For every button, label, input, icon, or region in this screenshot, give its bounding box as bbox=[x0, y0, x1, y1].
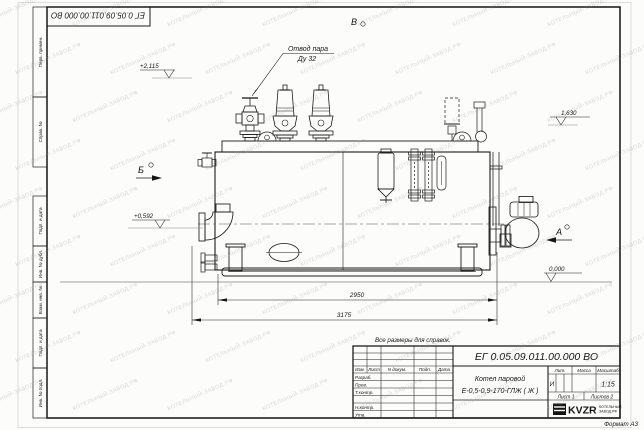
lit-value: И bbox=[550, 381, 555, 388]
view-v-text: В bbox=[351, 17, 357, 27]
view-b-marker: Б bbox=[136, 163, 162, 181]
col-doc: N докум. bbox=[388, 367, 407, 372]
view-a-marker: А bbox=[546, 225, 572, 243]
elevation-left: +0,592 bbox=[128, 213, 203, 228]
col-podp: Подп. bbox=[419, 367, 431, 372]
top-platform bbox=[222, 141, 478, 152]
product-name-2: Е-0,5-0,9-170-ГЛЖ ( Ж ) bbox=[462, 388, 539, 395]
steam-outlet-label-2: Ду 32 bbox=[297, 56, 316, 63]
margin-label: Справ. № bbox=[38, 122, 43, 143]
dim-overall-text: 3175 bbox=[337, 312, 352, 319]
left-elbow bbox=[199, 204, 233, 241]
margin-label: Взам. инв. № bbox=[38, 286, 43, 315]
kvzr-logo: KVZR КОТЕЛЬНЫЙ ЗАВОД.РФ bbox=[553, 404, 622, 417]
elev-right-text: 1,630 bbox=[561, 110, 577, 117]
row-tkontr: Т.контр. bbox=[355, 390, 374, 395]
elev-left-text: +0,592 bbox=[134, 213, 154, 220]
burner bbox=[489, 197, 539, 256]
drawing-canvas: Перв. примен. Справ. № Подп. и дата Инв.… bbox=[0, 0, 644, 430]
gauge-cylinder bbox=[378, 149, 394, 203]
margin-label: Подп. и дата bbox=[38, 207, 43, 235]
product-name-1: Котел паровой bbox=[475, 375, 525, 383]
sheet-number: Лист 1 bbox=[556, 395, 574, 401]
row-prov: Пров. bbox=[355, 383, 367, 388]
row-razrab: Разраб. bbox=[355, 375, 372, 380]
safety-valve-2 bbox=[309, 85, 333, 141]
title-block: Все размеры для справок. Изм. Лист N док… bbox=[353, 337, 639, 428]
boiler-body bbox=[198, 132, 508, 270]
steam-outlet-leader: Отвод пара Ду 32 bbox=[252, 45, 334, 96]
elev-top-text: +2,115 bbox=[140, 63, 159, 70]
elev-zero-text: 0,000 bbox=[549, 266, 565, 273]
safety-valve-1 bbox=[273, 85, 297, 141]
inverted-designation-box: ЕГ 0.05.09.011.00.000 ВО bbox=[47, 7, 150, 26]
skid-supports bbox=[222, 244, 482, 276]
reference-note: Все размеры для справок. bbox=[375, 337, 451, 344]
elevation-top: +2,115 bbox=[140, 63, 192, 78]
logo-text: KVZR bbox=[568, 405, 597, 417]
sheets-total: Листов 2 bbox=[590, 395, 614, 401]
dimension-3175: 3175 bbox=[192, 246, 497, 325]
margin-label: Подп. и дата bbox=[38, 329, 43, 357]
drawing-sheet: Перв. примен. Справ. № Подп. и дата Инв.… bbox=[0, 0, 644, 430]
doc-number: ЕГ 0.05.09.011.00.000 ВО bbox=[475, 351, 598, 363]
scale-value: 1:15 bbox=[601, 382, 615, 389]
steam-outlet-label-1: Отвод пара bbox=[288, 45, 328, 53]
view-a-text: А bbox=[555, 227, 562, 237]
right-top-fitting bbox=[444, 98, 487, 142]
elevation-zero: 0,000 bbox=[544, 266, 582, 282]
col-izm: Изм. bbox=[355, 367, 365, 372]
margin-label: Перв. примен. bbox=[38, 37, 43, 68]
trim-border bbox=[18, 3, 631, 428]
left-wall-valve bbox=[198, 153, 216, 167]
inverted-designation-text: ЕГ 0.05.09.011.00.000 ВО bbox=[51, 11, 145, 20]
logo-sub-1: КОТЕЛЬНЫЙ bbox=[599, 405, 622, 409]
lit-header: Лит. bbox=[554, 368, 566, 373]
col-data: Дата bbox=[437, 367, 451, 372]
view-v-marker: В bbox=[351, 17, 365, 27]
mass-header: Масса bbox=[577, 368, 591, 373]
right-pipe-nozzle bbox=[490, 152, 510, 246]
logo-sub-2: ЗАВОД.РФ bbox=[599, 410, 617, 414]
steam-outlet-valve bbox=[236, 98, 264, 141]
dim-inner-text: 2950 bbox=[349, 292, 365, 299]
format-label: Формат А3 bbox=[604, 421, 638, 428]
dimension-2950: 2950 bbox=[218, 252, 497, 325]
level-gauge bbox=[409, 149, 447, 201]
margin-cells: Перв. примен. Справ. № Подп. и дата Инв.… bbox=[33, 7, 47, 418]
margin-label: Инв. № дубл. bbox=[38, 250, 43, 278]
margin-label: Инв. № подл. bbox=[38, 379, 43, 408]
col-list: Лист bbox=[367, 367, 380, 372]
scale-header: Масштаб bbox=[597, 368, 619, 373]
row-utv: Утв. bbox=[355, 413, 365, 418]
elevation-right: 1,630 bbox=[548, 110, 590, 125]
view-b-text: Б bbox=[138, 165, 144, 175]
row-nkontr: Н.контр. bbox=[355, 405, 374, 410]
